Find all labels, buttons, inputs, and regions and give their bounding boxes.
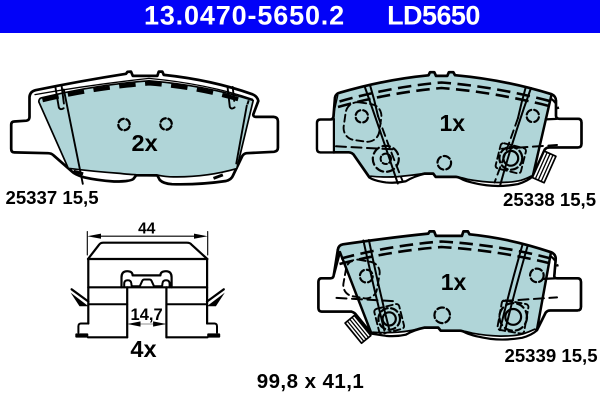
svg-text:2x: 2x [132,130,158,156]
svg-text:4x: 4x [130,336,156,362]
svg-text:99,8 x 41,1: 99,8 x 41,1 [257,370,365,393]
svg-text:13.0470-5650.2: 13.0470-5650.2 [144,1,345,31]
svg-text:25339 15,5: 25339 15,5 [505,345,598,366]
svg-text:25338 15,5: 25338 15,5 [503,189,596,210]
svg-text:LD5650: LD5650 [387,1,480,31]
svg-text:1x: 1x [440,110,466,136]
svg-text:25337 15,5: 25337 15,5 [6,187,99,208]
svg-text:14,7: 14,7 [131,306,163,324]
svg-text:44: 44 [138,221,156,238]
svg-text:1x: 1x [441,269,467,295]
